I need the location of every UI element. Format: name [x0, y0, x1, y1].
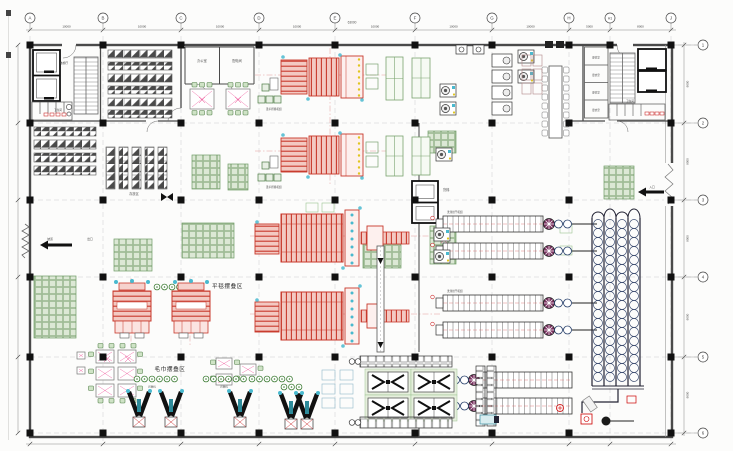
svg-text:9000: 9000 [686, 158, 690, 165]
v-folder-machine [158, 389, 184, 427]
overall-dimension: 63000 [348, 21, 357, 25]
svg-text:J: J [670, 16, 672, 21]
tunnel-washer-line [452, 372, 573, 388]
grid-bubble: H1 [605, 13, 615, 30]
grid-bubble: H [564, 13, 574, 30]
svg-text:B: B [102, 16, 105, 21]
svg-text:10000: 10000 [216, 25, 225, 29]
svg-text:9000: 9000 [686, 235, 690, 242]
ramp-zigzag [22, 224, 29, 258]
zone-label-flat-fold: 平毯摆叠区 [212, 282, 243, 290]
svg-text:F: F [414, 16, 417, 21]
ironing-line [258, 131, 364, 181]
freight-elevator-label: 货梯 [443, 187, 450, 192]
locker-room-label: 更衣室 [592, 91, 600, 95]
grid-bubble: 3 [698, 195, 708, 205]
locker-room-label: 更衣室 [592, 56, 600, 60]
toilet-label: 卫生间 [54, 108, 62, 112]
svg-text:8000: 8000 [637, 25, 644, 29]
elevator-hall-label: 电梯厅 [60, 61, 69, 65]
entry-label: 入口 [649, 185, 655, 189]
power-room-label: 配电间 [232, 58, 242, 63]
ramp-label: 坡道 [47, 237, 53, 241]
ironing-line [258, 53, 364, 103]
v-folder-machine [126, 389, 152, 427]
tunnel-washer-label: 洗涤烘干机组 [447, 210, 463, 214]
toilet-label: 卫生间 [626, 99, 634, 103]
ring-conveyor [582, 209, 644, 413]
grid-bubble: 1 [698, 40, 708, 50]
grid-bubble: 5 [698, 352, 708, 362]
grid-bubble: C [176, 13, 186, 30]
ironer-line-label: 烫平折叠机组 [266, 185, 282, 189]
locker-room-label: 更衣室 [592, 108, 600, 112]
exit-label: 出口 [87, 237, 93, 241]
svg-text:E: E [334, 16, 337, 21]
svg-text:D: D [257, 16, 260, 21]
grid-bubble: 2 [698, 118, 708, 128]
svg-text:5000: 5000 [586, 25, 593, 29]
tunnel-washer-label: 洗涤烘干机组 [447, 289, 463, 293]
svg-text:10000: 10000 [449, 25, 458, 29]
sheet-edge-marks [6, 10, 11, 440]
tunnel-washer-line [431, 243, 597, 259]
grid-bubble: 4 [698, 272, 708, 282]
svg-text:10000: 10000 [62, 25, 71, 29]
door-opening [617, 43, 633, 48]
v-folder-machine [294, 391, 320, 429]
svg-text:9000: 9000 [686, 80, 690, 87]
grid-bubble: B [98, 13, 108, 30]
grid-bubble: 6 [698, 428, 708, 438]
svg-text:C: C [179, 16, 182, 21]
grid-bubble: G [487, 13, 497, 30]
zone-label-storage: 存放区 [129, 191, 139, 196]
folder-label: 折叠机 [148, 385, 156, 389]
stacker-machine [172, 279, 210, 338]
grid-bubble: F [410, 13, 420, 30]
stacker-machine [113, 279, 151, 338]
door-opening [62, 43, 76, 48]
svg-text:9000: 9000 [686, 313, 690, 320]
svg-text:10000: 10000 [371, 25, 380, 29]
stair-topleft [74, 57, 98, 114]
svg-text:9000: 9000 [686, 391, 690, 398]
zone-label-towel-fold: 毛巾摆叠区 [155, 365, 186, 373]
tunnel-washer-line [431, 295, 597, 311]
sewing-cluster [349, 356, 496, 428]
long-meeting-table [549, 66, 562, 138]
tunnel-washer-line [431, 322, 597, 338]
svg-text:H: H [567, 16, 570, 21]
elevator-core-topleft [33, 50, 60, 101]
office-label: 办公室 [197, 58, 207, 63]
floor-plan-sheet: 63000 平毯摆叠区 毛巾摆叠区 存放区 货梯 电梯厅 卫生间 卫生间 办公室… [0, 0, 733, 451]
svg-text:10000: 10000 [138, 25, 147, 29]
svg-text:A: A [29, 16, 32, 21]
v-folder-machine [227, 389, 253, 427]
grid-bubble: A [25, 13, 35, 30]
floor-plan-svg: 63000 平毯摆叠区 毛巾摆叠区 存放区 货梯 电梯厅 卫生间 卫生间 办公室… [0, 0, 733, 451]
grid-bubble: J [666, 13, 676, 30]
svg-text:G: G [490, 16, 494, 21]
ironer-line-label: 烫平折叠机组 [266, 107, 282, 111]
grid-bubble: D [254, 13, 264, 30]
svg-text:H1: H1 [608, 17, 612, 21]
svg-text:10000: 10000 [526, 25, 535, 29]
toilets-topleft [32, 102, 72, 120]
svg-text:10000: 10000 [293, 25, 302, 29]
ironing-line-large [255, 284, 409, 348]
tunnel-washer-line [452, 398, 573, 414]
conveyor-rail [377, 246, 384, 352]
grid-bubble: E [330, 13, 340, 30]
locker-room-label: 更衣室 [592, 73, 600, 77]
